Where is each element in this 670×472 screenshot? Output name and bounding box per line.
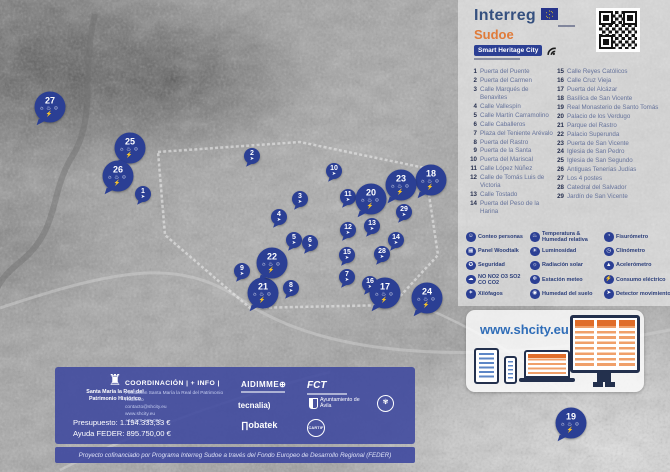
map-marker-27[interactable]: 27☼♨☺⚡ [35, 92, 66, 123]
map-marker-19[interactable]: 19☼♨☺⚡ [556, 408, 587, 439]
map-marker-7[interactable]: 7➤ [339, 269, 355, 285]
map-marker-23[interactable]: 23☼♨☺⚡ [386, 170, 417, 201]
map-marker-15[interactable]: 15➤ [339, 247, 355, 263]
marker-sensor-icons: ➤ [370, 227, 374, 232]
budget-block: Presupuesto: 1.194.333,33 € Ayuda FEDER:… [73, 417, 171, 439]
marker-sensor-icons: ➤ [240, 272, 244, 277]
marker-number: 20 [366, 189, 376, 198]
ayuntamiento-avila-logo: Ayuntamiento de Ávila [309, 397, 367, 410]
marker-sensor-icons: ➤ [402, 213, 406, 218]
map-marker-22[interactable]: 22☼♨☺⚡ [257, 248, 288, 279]
coordination-title: COORDINACIÓN | + INFO | [125, 380, 240, 387]
marker-sensor-icons: ➤ [141, 195, 145, 200]
aidimme-logo: AIDIMME⊕ [241, 380, 286, 393]
marker-sensor-icons: ☼♨☺⚡ [360, 198, 382, 210]
marker-number: 18 [426, 170, 436, 179]
marker-sensor-icons: ➤ [345, 256, 349, 261]
nobatek-logo: ∏obatek [241, 420, 277, 430]
marker-sensor-icons: ☼♨☺⚡ [119, 147, 141, 159]
marker-sensor-icons: ☼♨☺⚡ [39, 106, 61, 118]
map-marker-4[interactable]: 4➤ [271, 209, 287, 225]
marker-number: 25 [125, 138, 135, 147]
map-marker-29[interactable]: 29➤ [396, 204, 412, 220]
marker-number: 22 [267, 253, 277, 262]
shield-icon [309, 398, 318, 409]
coordination-email[interactable]: contacto@shcity.eu [125, 404, 240, 411]
marker-sensor-icons: ➤ [394, 241, 398, 246]
marker-number: 27 [45, 97, 55, 106]
tecnalia-logo: tecnalia) [238, 401, 270, 410]
map-marker-3[interactable]: 3➤ [292, 191, 308, 207]
marker-sensor-icons: ☼♨☺⚡ [107, 175, 129, 187]
map-marker-9[interactable]: 9➤ [234, 263, 250, 279]
marker-sensor-icons: ➤ [346, 231, 350, 236]
project-info-panel: ♜ Santa María la Real del Patrimonio His… [55, 367, 415, 444]
marker-number: 23 [396, 175, 406, 184]
budget-feder: Ayuda FEDER: 895.750,00 € [73, 428, 171, 439]
marker-sensor-icons: ➤ [277, 218, 281, 223]
marker-sensor-icons: ➤ [292, 241, 296, 246]
map-marker-20[interactable]: 20☼♨☺⚡ [356, 184, 387, 215]
map-marker-11[interactable]: 11➤ [340, 189, 356, 205]
marker-sensor-icons: ☼♨☺⚡ [252, 292, 274, 304]
cofinance-bar: Proyecto cofinanciado por Programa Inter… [55, 447, 415, 463]
marker-sensor-icons: ➤ [345, 278, 349, 283]
fct-logo: FCT [307, 380, 347, 395]
heritage-emblem-logo: ✾ [377, 395, 394, 412]
marker-sensor-icons: ➤ [289, 289, 293, 294]
map-marker-17[interactable]: 17☼♨☺⚡ [370, 278, 401, 309]
marker-sensor-icons: ☼♨☺⚡ [390, 184, 412, 196]
map-marker-1[interactable]: 1➤ [135, 186, 151, 202]
map-marker-12[interactable]: 12➤ [340, 222, 356, 238]
marker-sensor-icons: ☼♨☺⚡ [261, 262, 283, 274]
cartif-logo: CARTIF [307, 419, 325, 437]
marker-number: 17 [380, 283, 390, 292]
marker-number: 19 [566, 413, 576, 422]
map-marker-18[interactable]: 18☼♨☺⚡ [416, 165, 447, 196]
marker-sensor-icons: ☼♨☺⚡ [416, 297, 438, 309]
marker-sensor-icons: ➤ [308, 244, 312, 249]
marker-number: 24 [422, 288, 432, 297]
map-marker-5[interactable]: 5➤ [286, 232, 302, 248]
marker-sensor-icons: ☼♨☺⚡ [374, 292, 396, 304]
marker-sensor-icons: ➤ [380, 255, 384, 260]
marker-sensor-icons: ☼♨☺⚡ [560, 422, 582, 434]
marker-sensor-icons: ➤ [332, 172, 336, 177]
map-marker-28[interactable]: 28➤ [374, 246, 390, 262]
map-marker-25[interactable]: 25☼♨☺⚡ [115, 133, 146, 164]
cofinance-text: Proyecto cofinanciado por Programa Inter… [79, 452, 392, 459]
map-marker-13[interactable]: 13➤ [364, 218, 380, 234]
map-marker-10[interactable]: 10➤ [326, 163, 342, 179]
marker-sensor-icons: ➤ [346, 198, 350, 203]
marker-sensor-icons: ➤ [250, 157, 254, 162]
marker-number: 21 [258, 283, 268, 292]
map-marker-2[interactable]: 2➤ [244, 148, 260, 164]
map-marker-6[interactable]: 6➤ [302, 235, 318, 251]
map-marker-24[interactable]: 24☼♨☺⚡ [412, 283, 443, 314]
budget-total: Presupuesto: 1.194.333,33 € [73, 417, 171, 428]
marker-sensor-icons: ➤ [298, 200, 302, 205]
marker-number: 26 [113, 166, 123, 175]
map-marker-8[interactable]: 8➤ [283, 280, 299, 296]
coordination-org: Fundación Santa María la Real del Patrim… [125, 390, 240, 404]
poster-map: Interreg Sudoe Smart Heritage City 1Puer… [0, 0, 670, 472]
map-marker-26[interactable]: 26☼♨☺⚡ [103, 161, 134, 192]
marker-sensor-icons: ☼♨☺⚡ [420, 179, 442, 191]
map-marker-14[interactable]: 14➤ [388, 232, 404, 248]
